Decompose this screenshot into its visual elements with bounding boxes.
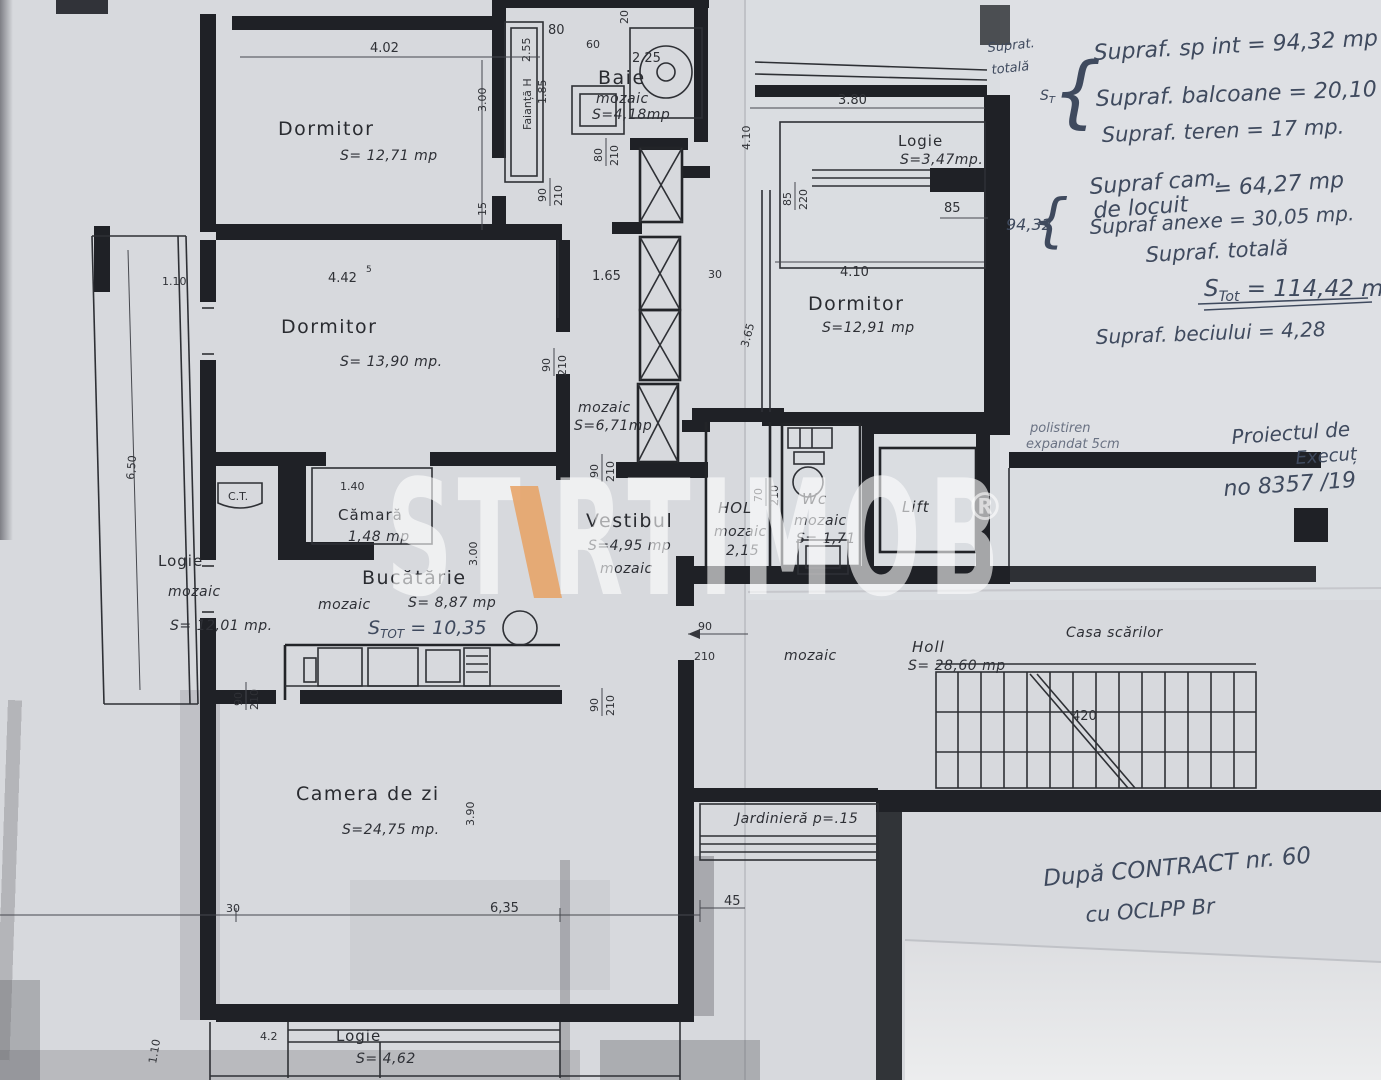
dim-185: 1.85 [536,80,549,105]
dim-410-fold: 4.10 [740,126,753,151]
svg-text:210: 210 [552,185,565,206]
dim-faianta: Faianță H [521,78,534,130]
room-area-logie-bottom: S= 4,62 [356,1051,416,1067]
svg-text:210: 210 [604,695,617,716]
note-polistiren-1: polistiren [1029,421,1091,436]
room-area-dormitor1: S= 12,71 mp [340,148,438,164]
hall-finish: mozaic [578,400,631,416]
svg-text:210: 210 [556,355,569,376]
svg-text:210: 210 [248,689,261,710]
dim-650: 6,50 [124,455,139,481]
room-finish-logie-left: mozaic [168,584,221,600]
svg-text:220: 220 [797,189,810,210]
dim-85: 85 [944,201,961,216]
svg-text:90: 90 [540,358,553,372]
dim-300-a: 3.00 [476,88,489,113]
room-label-dormitor1: Dormitor [278,118,374,140]
note-polistiren-2: expandat 5cm [1026,437,1120,452]
dim-30-living: 30 [226,902,240,915]
dim-140: 1.40 [340,480,365,493]
note-proiect-2: Execuț [1295,444,1359,469]
corridor-finish: mozaic [784,648,837,664]
room-label-logie-bottom: Logie [336,1027,381,1045]
room-label-logie-right: Logie [898,132,943,150]
room-area-camera-zi: S=24,75 mp. [342,822,440,838]
dim-390: 3.90 [464,802,477,827]
dim-442: 4.42 [328,271,357,286]
room-area-baie: S=4,18mp [592,107,670,123]
svg-text:90: 90 [232,692,245,706]
hall-area: S=6,71mp [574,418,652,434]
room-label-logie-left: Logie [158,552,203,570]
dim-410: 4.10 [840,265,869,280]
room-finish-baie: mozaic [596,91,649,107]
dim-60: 60 [586,38,600,51]
dim-225: 2.25 [632,51,661,66]
room-area-holl: S= 28,60 mp [908,658,1006,674]
dim-420: 420 [1072,709,1097,724]
room-label-dormitor2: Dormitor [281,316,377,338]
watermark-text-left: ST [386,446,525,632]
room-finish-bucatarie: mozaic [318,597,371,613]
svg-text:210: 210 [694,650,715,663]
room-area-dormitor3: S=12,91 mp [822,320,915,336]
room-area-logie-right: S=3,47mp. [900,152,983,168]
registered-trademark-icon: ® [966,485,1004,529]
floor-plan-canvas: Dormitor S= 12,71 mp Dormitor S= 13,90 m… [0,0,1381,1080]
dim-30-shaft: 30 [708,268,722,281]
dim-20: 20 [618,10,631,24]
dim-635: 6,35 [490,901,519,916]
dim-442-sup: 5 [366,265,372,275]
room-area-logie-left: S= 12,01 mp. [170,618,273,634]
dim-80: 80 [548,23,565,38]
svg-text:90: 90 [588,698,601,712]
dim-110-top: 1.10 [162,275,187,288]
room-label-holl: Holl [912,638,945,656]
dim-45: 45 [724,894,741,909]
label-jardiniera: Jardinieră p=.15 [733,811,858,827]
room-area-dormitor2: S= 13,90 mp. [340,354,443,370]
dim-402: 4.02 [370,41,399,56]
scanned-floor-plan: Dormitor S= 12,71 mp Dormitor S= 13,90 m… [0,0,1381,1080]
dim-42: 4.2 [260,1030,278,1043]
dim-15: 15 [476,202,489,216]
svg-text:90: 90 [536,188,549,202]
startimob-watermark: ST RTIMOB ® [386,446,1008,632]
svg-text:210: 210 [608,145,621,166]
dim-255: 2.55 [520,38,533,63]
label-casa-scarilor: Casa scărilor [1066,625,1163,641]
room-label-dormitor3: Dormitor [808,293,904,315]
note-brace-mid: { [1032,186,1069,254]
svg-text:85: 85 [781,192,794,206]
room-label-baie: Baie [598,67,646,89]
label-ct: C.T. [228,490,248,503]
watermark-text-right: RTIMOB [552,446,1008,632]
dim-165: 1.65 [592,269,621,284]
dim-380: 3.80 [838,93,867,108]
room-label-camera-zi: Camera de zi [296,783,440,805]
svg-text:80: 80 [592,148,605,162]
